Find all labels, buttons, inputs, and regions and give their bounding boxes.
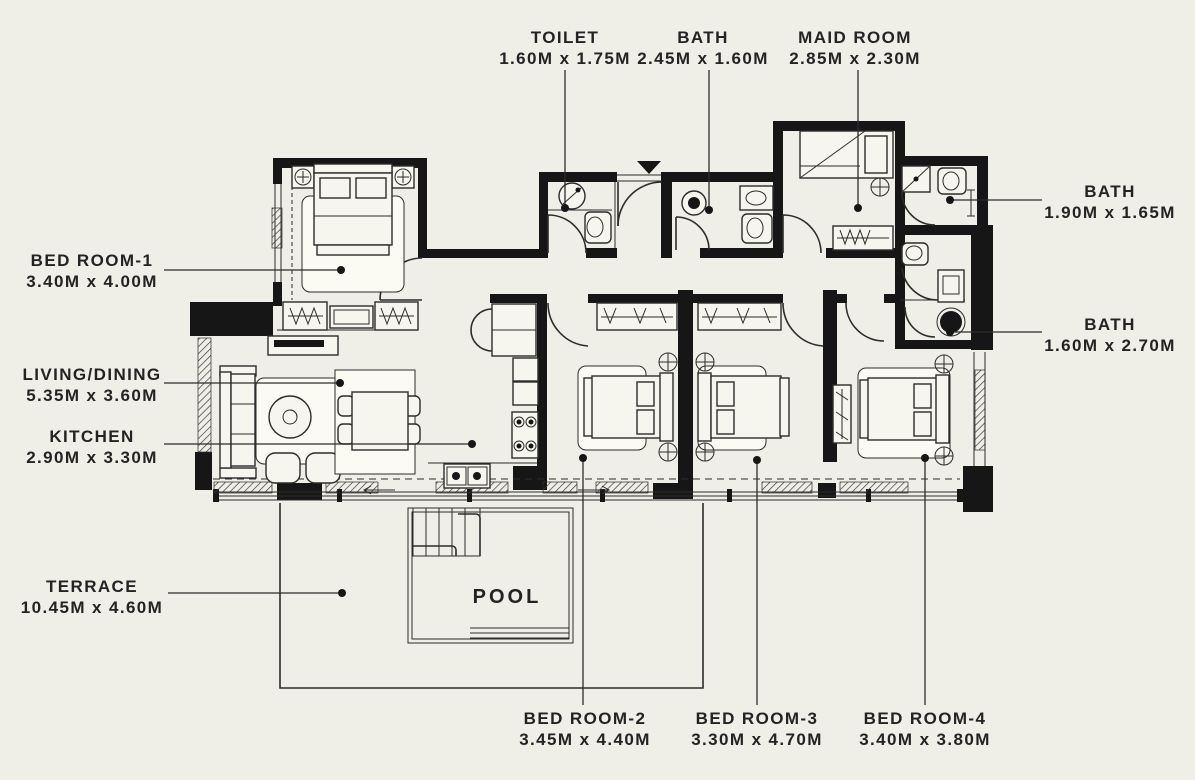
label-bed-room-1: BED ROOM-1 3.40M x 4.00M [26, 250, 158, 292]
room-name: BED ROOM-4 [859, 708, 991, 729]
room-dims: 3.45M x 4.40M [519, 729, 651, 750]
toilet-fixtures [548, 183, 612, 243]
label-bath-right-upper: BATH 1.90M x 1.65M [1044, 181, 1176, 223]
kitchen-fixtures [428, 304, 538, 488]
room-name: BATH [1044, 314, 1176, 335]
room-name: TERRACE [21, 576, 163, 597]
entrance-marker [637, 161, 661, 174]
bath-top-fixtures [682, 186, 773, 243]
label-terrace: TERRACE 10.45M x 4.60M [21, 576, 163, 618]
living-dining-furniture [220, 336, 420, 483]
room-dims: 3.30M x 4.70M [691, 729, 823, 750]
room-dims: 1.60M x 2.70M [1044, 335, 1176, 356]
label-bath-top: BATH 2.45M x 1.60M [637, 27, 769, 69]
room-name: LIVING/DINING [22, 364, 161, 385]
label-kitchen: KITCHEN 2.90M x 3.30M [26, 426, 158, 468]
room-dims: 2.85M x 2.30M [789, 48, 921, 69]
room-dims: 1.90M x 1.65M [1044, 202, 1176, 223]
room-dims: 2.90M x 3.30M [26, 447, 158, 468]
room-name: BATH [1044, 181, 1176, 202]
room-name: MAID ROOM [789, 27, 921, 48]
bedroom-2-furniture [578, 303, 677, 461]
label-toilet: TOILET 1.60M x 1.75M [499, 27, 631, 69]
bath-right-upper-fixtures [902, 166, 975, 216]
room-name: BED ROOM-2 [519, 708, 651, 729]
pool-label: POOL [473, 586, 542, 609]
room-dims: 3.40M x 3.80M [859, 729, 991, 750]
label-living-dining: LIVING/DINING 5.35M x 3.60M [22, 364, 161, 406]
label-bed-room-3: BED ROOM-3 3.30M x 4.70M [691, 708, 823, 750]
bedroom-4-furniture [833, 355, 953, 465]
label-bed-room-4: BED ROOM-4 3.40M x 3.80M [859, 708, 991, 750]
room-dims: 1.60M x 1.75M [499, 48, 631, 69]
room-name: KITCHEN [26, 426, 158, 447]
room-dims: 3.40M x 4.00M [26, 271, 158, 292]
label-bath-right-lower: BATH 1.60M x 2.70M [1044, 314, 1176, 356]
room-name: BED ROOM-1 [26, 250, 158, 271]
room-name: TOILET [499, 27, 631, 48]
room-name: BATH [637, 27, 769, 48]
bedroom-1-furniture [283, 164, 418, 330]
room-dims: 10.45M x 4.60M [21, 597, 163, 618]
bedroom-3-furniture [696, 303, 789, 461]
room-dims: 5.35M x 3.60M [22, 385, 161, 406]
label-bed-room-2: BED ROOM-2 3.45M x 4.40M [519, 708, 651, 750]
room-dims: 2.45M x 1.60M [637, 48, 769, 69]
floor-plan-drawing [0, 0, 1195, 780]
label-maid-room: MAID ROOM 2.85M x 2.30M [789, 27, 921, 69]
room-name: BED ROOM-3 [691, 708, 823, 729]
floorplan-canvas: TOILET 1.60M x 1.75M BATH 2.45M x 1.60M … [0, 0, 1195, 780]
